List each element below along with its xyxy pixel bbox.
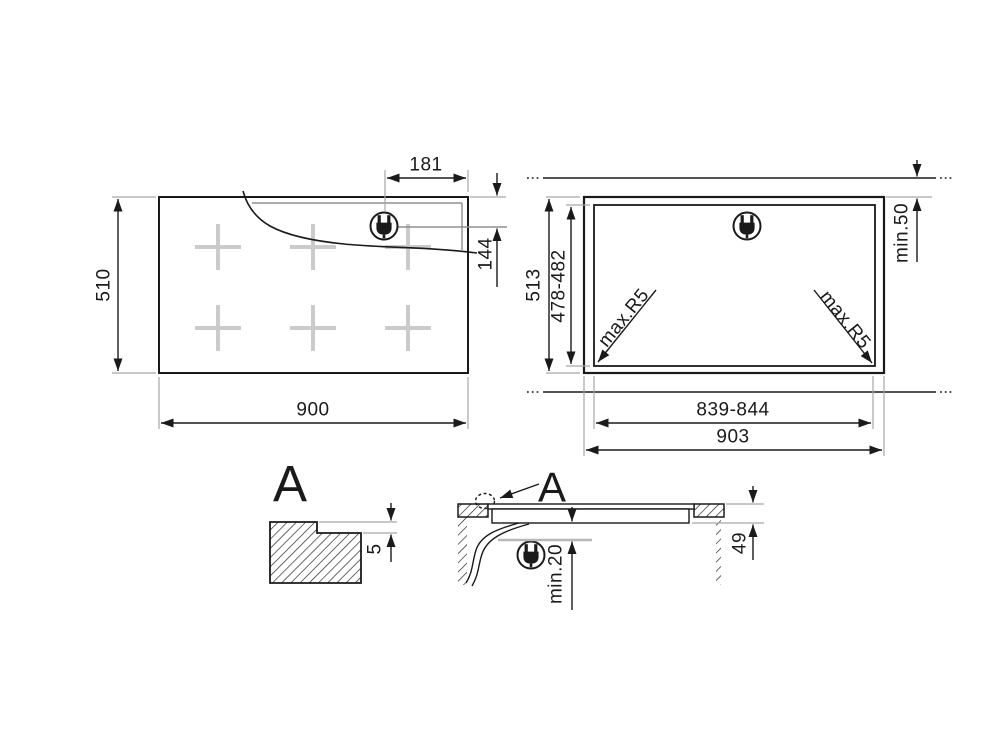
installation-diagram-page: 510 900 181 144 — [0, 0, 1000, 748]
hob-body — [492, 509, 689, 523]
power-plug-icon — [518, 542, 545, 569]
dim-label-839-844: 839-844 — [696, 400, 769, 421]
dim-label-5: 5 — [365, 543, 386, 554]
cabinet-panel-left — [458, 517, 467, 585]
detail-a-title: A — [273, 456, 307, 513]
dim-label-903: 903 — [716, 427, 749, 448]
hob-glass — [488, 504, 694, 509]
installation-diagram: 510 900 181 144 — [0, 0, 1000, 748]
power-plug-icon — [734, 213, 761, 240]
dim-label-min50: min.50 — [892, 203, 913, 263]
worktop-block-left — [458, 504, 488, 517]
dim-label-900: 900 — [296, 400, 329, 421]
worktop-block-right — [694, 504, 724, 517]
dim-label-478-482: 478-482 — [549, 249, 570, 322]
power-plug-icon — [371, 213, 398, 240]
cabinet-panel-right — [716, 517, 721, 585]
dim-label-min20: min.20 — [546, 544, 567, 604]
dim-label-49: 49 — [730, 532, 751, 554]
dim-label-181: 181 — [409, 155, 442, 176]
dim-label-144: 144 — [476, 237, 497, 270]
dim-label-510: 510 — [94, 268, 115, 301]
dim-label-513: 513 — [524, 268, 545, 301]
